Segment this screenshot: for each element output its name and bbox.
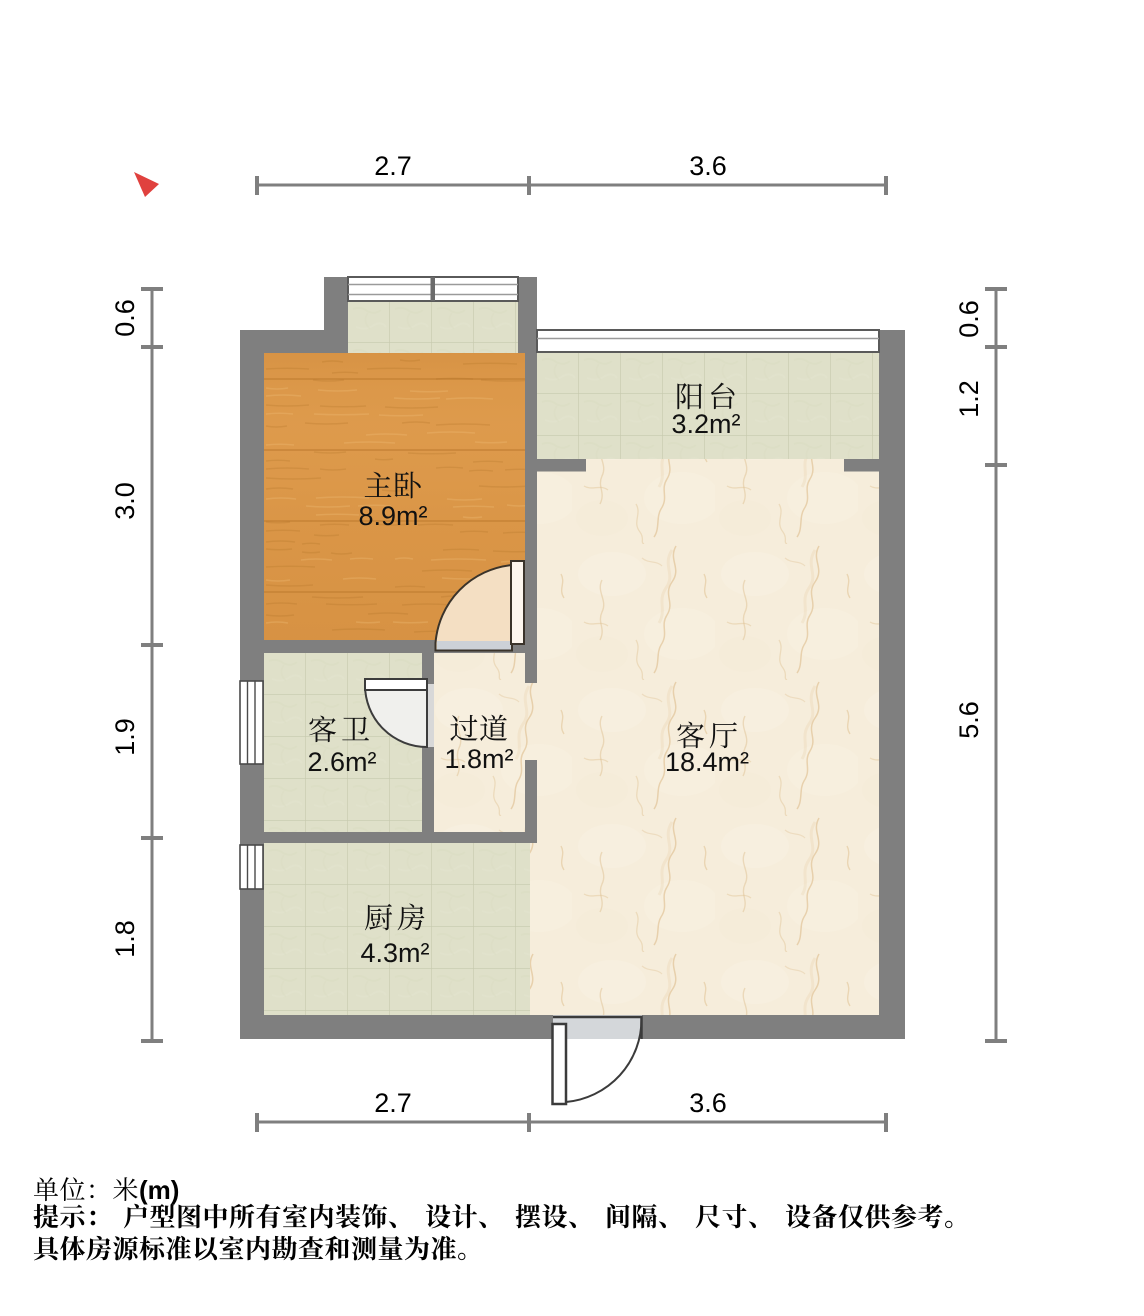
svg-text:1.8: 1.8 <box>110 920 140 958</box>
svg-text:主卧: 主卧 <box>363 464 422 505</box>
svg-text:8.9m²: 8.9m² <box>358 501 427 531</box>
svg-text:过道: 过道 <box>449 707 508 748</box>
svg-text:2.6m²: 2.6m² <box>307 747 376 777</box>
svg-text:1.2: 1.2 <box>954 380 984 418</box>
svg-text:1.8m²: 1.8m² <box>444 744 513 774</box>
svg-text:4.3m²: 4.3m² <box>360 938 429 968</box>
svg-text:1.9: 1.9 <box>110 718 140 756</box>
svg-text:18.4m²: 18.4m² <box>665 747 749 777</box>
svg-text:0.6: 0.6 <box>954 300 984 338</box>
svg-text:3.2m²: 3.2m² <box>671 409 740 439</box>
svg-text:3.0: 3.0 <box>110 482 140 520</box>
svg-text:客卫: 客卫 <box>308 708 374 749</box>
svg-text:2.7: 2.7 <box>374 151 412 181</box>
svg-text:厨房: 厨房 <box>364 896 430 937</box>
svg-text:5.6: 5.6 <box>954 701 984 739</box>
svg-text:0.6: 0.6 <box>110 299 140 337</box>
svg-text:2.7: 2.7 <box>374 1088 412 1118</box>
svg-text:3.6: 3.6 <box>689 1088 727 1118</box>
svg-text:3.6: 3.6 <box>689 151 727 181</box>
